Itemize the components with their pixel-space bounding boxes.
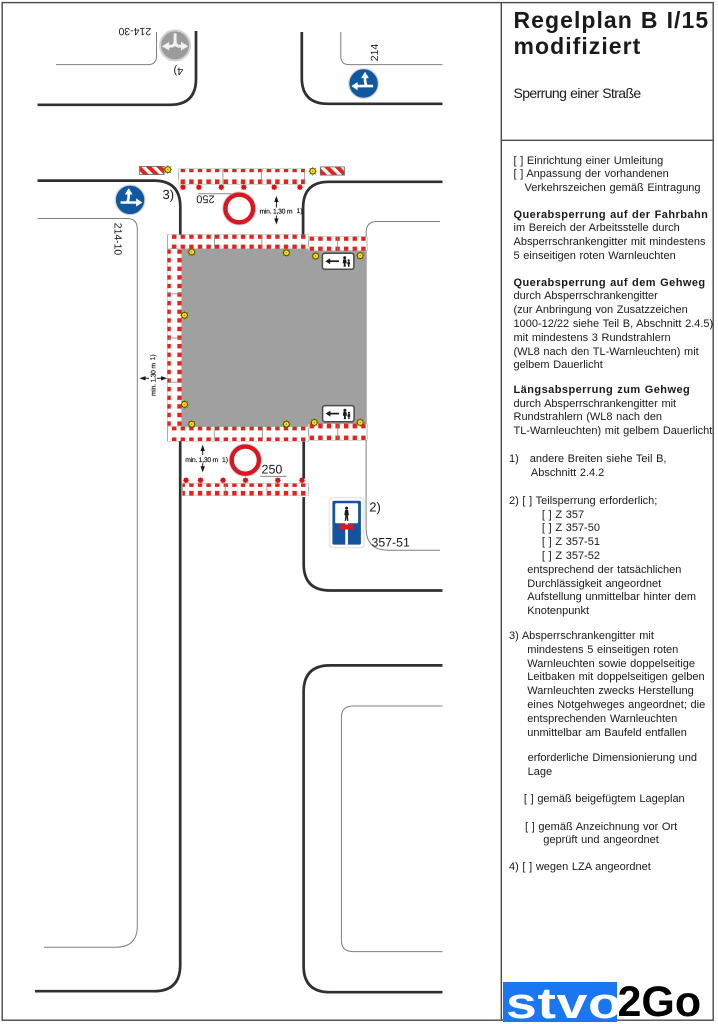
svg-text:214: 214 — [370, 44, 381, 62]
svg-text:1): 1) — [222, 457, 228, 464]
svg-text:1): 1) — [150, 354, 157, 360]
svg-text:357-51: 357-51 — [372, 536, 410, 550]
svg-text:min. 1,30 m: min. 1,30 m — [185, 457, 218, 464]
svg-text:min. 1,30 m: min. 1,30 m — [260, 208, 293, 215]
svg-text:214-30: 214-30 — [118, 25, 151, 37]
svg-text:2): 2) — [369, 499, 381, 514]
svg-text:250: 250 — [196, 193, 214, 205]
svg-text:250: 250 — [262, 463, 283, 477]
svg-text:min. 1,30 m: min. 1,30 m — [151, 363, 158, 396]
svg-text:214-10: 214-10 — [111, 223, 122, 256]
svg-text:4): 4) — [174, 65, 184, 77]
svg-text:3): 3) — [163, 187, 175, 202]
svg-text:1): 1) — [297, 208, 303, 215]
